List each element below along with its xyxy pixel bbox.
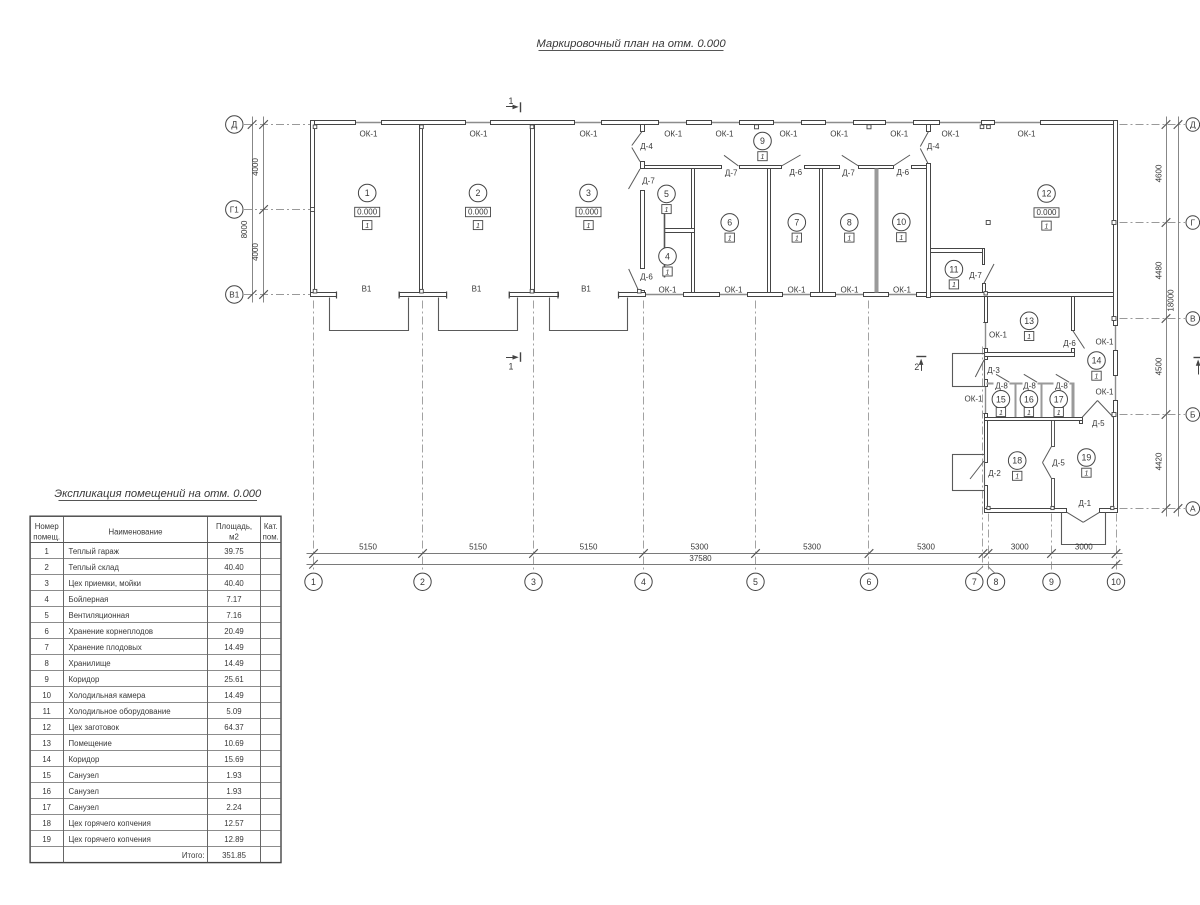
svg-text:Теплый склад: Теплый склад <box>69 563 120 572</box>
svg-text:Номер: Номер <box>35 522 60 531</box>
svg-text:17: 17 <box>1054 394 1064 404</box>
svg-text:15.69: 15.69 <box>224 755 244 764</box>
svg-text:Д-5: Д-5 <box>1092 419 1105 428</box>
svg-text:1: 1 <box>1015 474 1019 481</box>
svg-text:3: 3 <box>45 579 49 588</box>
svg-text:16: 16 <box>42 787 51 796</box>
svg-text:1: 1 <box>365 188 370 198</box>
svg-text:5.09: 5.09 <box>226 707 241 716</box>
svg-text:ОК-1: ОК-1 <box>890 130 909 139</box>
svg-text:1.93: 1.93 <box>226 771 241 780</box>
svg-text:Санузел: Санузел <box>69 771 100 780</box>
svg-text:12: 12 <box>1042 189 1052 199</box>
svg-text:В1: В1 <box>229 291 239 300</box>
svg-text:1: 1 <box>509 96 514 106</box>
svg-text:Вентиляционная: Вентиляционная <box>69 611 130 620</box>
svg-text:Д: Д <box>1190 120 1196 130</box>
svg-text:2: 2 <box>476 188 481 198</box>
svg-text:ОК-1: ОК-1 <box>1096 338 1115 347</box>
svg-text:4: 4 <box>665 251 670 261</box>
svg-text:ОК-1: ОК-1 <box>780 130 799 139</box>
svg-text:ОК-1: ОК-1 <box>989 331 1008 340</box>
svg-text:ОК-1: ОК-1 <box>830 130 849 139</box>
svg-text:Д-6: Д-6 <box>790 168 803 177</box>
svg-text:37580: 37580 <box>689 554 712 563</box>
svg-text:3: 3 <box>531 577 536 587</box>
svg-text:ОК-1: ОК-1 <box>659 286 678 295</box>
svg-text:64.37: 64.37 <box>224 723 244 732</box>
svg-text:м2: м2 <box>229 533 239 542</box>
svg-text:0.000: 0.000 <box>578 208 599 217</box>
svg-text:Г: Г <box>1191 218 1196 228</box>
svg-text:7: 7 <box>794 218 799 228</box>
svg-text:В1: В1 <box>581 284 591 293</box>
svg-text:4: 4 <box>45 595 50 604</box>
svg-text:1: 1 <box>999 410 1003 417</box>
svg-text:Д-2: Д-2 <box>988 469 1001 478</box>
svg-text:Бойлерная: Бойлерная <box>69 595 109 604</box>
svg-text:1: 1 <box>1027 334 1031 341</box>
svg-text:40.40: 40.40 <box>224 563 244 572</box>
svg-text:А: А <box>1190 504 1196 514</box>
svg-text:ОК-1: ОК-1 <box>965 395 984 404</box>
svg-text:10: 10 <box>42 691 51 700</box>
svg-text:2: 2 <box>420 577 425 587</box>
svg-text:9: 9 <box>1049 577 1054 587</box>
svg-text:Хранение плодовых: Хранение плодовых <box>69 643 142 652</box>
svg-text:18: 18 <box>1012 456 1022 466</box>
svg-text:7.16: 7.16 <box>226 611 241 620</box>
svg-text:8: 8 <box>994 577 999 587</box>
svg-text:1: 1 <box>1045 223 1049 230</box>
svg-text:8000: 8000 <box>240 220 249 238</box>
svg-text:19: 19 <box>42 835 51 844</box>
svg-text:18000: 18000 <box>1167 289 1176 312</box>
svg-text:0.000: 0.000 <box>357 208 378 217</box>
svg-text:4000: 4000 <box>251 158 260 176</box>
svg-text:Цех горячего копчения: Цех горячего копчения <box>69 819 151 828</box>
svg-text:Д-5: Д-5 <box>1052 458 1065 467</box>
svg-text:6: 6 <box>727 218 732 228</box>
svg-text:3: 3 <box>586 188 591 198</box>
svg-text:40.40: 40.40 <box>224 579 244 588</box>
svg-text:5: 5 <box>753 577 758 587</box>
svg-text:0.000: 0.000 <box>1036 208 1057 217</box>
svg-text:1: 1 <box>1084 471 1088 478</box>
svg-text:В: В <box>1190 314 1196 324</box>
svg-text:ОК-1: ОК-1 <box>580 130 599 139</box>
svg-text:Д-1: Д-1 <box>1079 499 1092 508</box>
svg-text:Экспликация помещений на отм.: Экспликация помещений на отм. 0.000 <box>54 488 262 500</box>
svg-text:9: 9 <box>760 136 765 146</box>
svg-text:ОК-1: ОК-1 <box>360 130 379 139</box>
svg-text:1: 1 <box>952 282 956 289</box>
svg-text:ОК-1: ОК-1 <box>788 286 807 295</box>
svg-text:17: 17 <box>42 803 51 812</box>
svg-text:Наименование: Наименование <box>108 528 162 537</box>
svg-text:2.24: 2.24 <box>226 803 242 812</box>
svg-text:13: 13 <box>42 739 51 748</box>
svg-text:1: 1 <box>728 235 732 242</box>
svg-text:14.49: 14.49 <box>224 691 244 700</box>
svg-text:Маркировочный план на отм. 0.0: Маркировочный план на отм. 0.000 <box>536 38 726 50</box>
svg-text:Холодильное оборудование: Холодильное оборудование <box>69 707 171 716</box>
svg-text:Г1: Г1 <box>230 206 239 215</box>
svg-text:Д-8: Д-8 <box>1023 382 1036 391</box>
svg-text:14.49: 14.49 <box>224 643 244 652</box>
svg-text:5300: 5300 <box>691 543 709 552</box>
svg-text:1: 1 <box>1095 374 1099 381</box>
svg-text:7: 7 <box>972 577 977 587</box>
svg-text:Д-6: Д-6 <box>1063 339 1076 348</box>
svg-text:11: 11 <box>949 264 958 274</box>
svg-text:Санузел: Санузел <box>69 787 100 796</box>
svg-text:ОК-1: ОК-1 <box>725 286 744 295</box>
svg-text:пом.: пом. <box>263 533 279 542</box>
svg-text:1: 1 <box>847 235 851 242</box>
svg-text:Д-3: Д-3 <box>987 366 1000 375</box>
svg-text:В1: В1 <box>472 284 482 293</box>
svg-text:Д-8: Д-8 <box>995 382 1008 391</box>
svg-text:20.49: 20.49 <box>224 627 244 636</box>
svg-text:Хранилище: Хранилище <box>69 659 111 668</box>
svg-text:14: 14 <box>1092 356 1102 366</box>
svg-text:12.89: 12.89 <box>224 835 244 844</box>
svg-text:1: 1 <box>665 207 669 214</box>
svg-text:Санузел: Санузел <box>69 803 100 812</box>
svg-text:1: 1 <box>795 235 799 242</box>
svg-text:14: 14 <box>42 755 51 764</box>
svg-text:5: 5 <box>45 611 50 620</box>
svg-text:4420: 4420 <box>1154 452 1163 470</box>
svg-text:1.93: 1.93 <box>226 787 241 796</box>
svg-text:Д-6: Д-6 <box>897 168 910 177</box>
svg-text:5: 5 <box>664 189 669 199</box>
svg-text:Цех приемки, мойки: Цех приемки, мойки <box>69 579 142 588</box>
svg-text:В1: В1 <box>362 284 372 293</box>
svg-text:1: 1 <box>45 547 49 556</box>
svg-text:351.85: 351.85 <box>222 851 247 860</box>
svg-text:ОК-1: ОК-1 <box>893 286 912 295</box>
svg-text:1: 1 <box>476 223 480 230</box>
svg-text:5300: 5300 <box>803 543 821 552</box>
svg-text:ОК-1: ОК-1 <box>1096 388 1115 397</box>
svg-text:6: 6 <box>45 627 49 636</box>
svg-text:Теплый гараж: Теплый гараж <box>69 547 120 556</box>
svg-text:10: 10 <box>896 217 906 227</box>
svg-text:4500: 4500 <box>1154 357 1163 375</box>
svg-text:2: 2 <box>914 362 919 372</box>
svg-text:Б: Б <box>1190 410 1196 420</box>
svg-text:Д-8: Д-8 <box>1055 382 1068 391</box>
svg-text:Хранение корнеплодов: Хранение корнеплодов <box>69 627 154 636</box>
svg-text:10: 10 <box>1111 577 1121 587</box>
svg-text:3000: 3000 <box>1075 543 1093 552</box>
svg-text:ОК-1: ОК-1 <box>470 130 489 139</box>
svg-text:14.49: 14.49 <box>224 659 244 668</box>
svg-text:1: 1 <box>311 577 316 587</box>
svg-text:Помещение: Помещение <box>69 739 112 748</box>
svg-text:6: 6 <box>867 577 872 587</box>
svg-text:12.57: 12.57 <box>224 819 244 828</box>
svg-text:4000: 4000 <box>251 243 260 261</box>
svg-text:4480: 4480 <box>1154 261 1163 279</box>
svg-text:1: 1 <box>509 362 514 372</box>
svg-text:1: 1 <box>1057 410 1061 417</box>
svg-text:11: 11 <box>43 707 51 716</box>
svg-text:Д-7: Д-7 <box>725 168 738 177</box>
svg-text:13: 13 <box>1024 316 1034 326</box>
svg-text:Итого:: Итого: <box>182 851 205 860</box>
svg-text:1: 1 <box>666 269 670 276</box>
svg-text:1: 1 <box>1027 410 1031 417</box>
svg-text:4600: 4600 <box>1154 164 1163 182</box>
svg-text:1: 1 <box>587 223 591 230</box>
svg-text:ОК-1: ОК-1 <box>716 130 735 139</box>
svg-text:Д-7: Д-7 <box>969 271 982 280</box>
svg-text:1: 1 <box>899 235 903 242</box>
svg-text:Д-6: Д-6 <box>640 273 653 282</box>
svg-text:1: 1 <box>761 154 765 161</box>
svg-text:3000: 3000 <box>1011 543 1029 552</box>
svg-text:Холодильная камера: Холодильная камера <box>69 691 147 700</box>
svg-text:15: 15 <box>42 771 51 780</box>
svg-text:39.75: 39.75 <box>224 547 244 556</box>
svg-text:Д-7: Д-7 <box>642 177 655 186</box>
svg-text:Д-4: Д-4 <box>640 142 653 151</box>
svg-text:Цех заготовок: Цех заготовок <box>69 723 120 732</box>
svg-text:8: 8 <box>45 659 49 668</box>
svg-text:ОК-1: ОК-1 <box>1018 130 1037 139</box>
svg-text:ОК-1: ОК-1 <box>841 286 860 295</box>
svg-text:8: 8 <box>847 218 852 228</box>
svg-text:5150: 5150 <box>580 543 598 552</box>
svg-text:15: 15 <box>996 394 1006 404</box>
svg-text:Площадь,: Площадь, <box>216 522 252 531</box>
svg-text:19: 19 <box>1082 453 1092 463</box>
svg-text:ОК-1: ОК-1 <box>942 130 961 139</box>
svg-text:Д-4: Д-4 <box>927 142 940 151</box>
svg-text:1: 1 <box>365 223 369 230</box>
svg-text:Коридор: Коридор <box>69 675 100 684</box>
svg-text:Коридор: Коридор <box>69 755 100 764</box>
svg-text:Цех горячего копчения: Цех горячего копчения <box>69 835 151 844</box>
svg-text:Кат.: Кат. <box>264 522 278 531</box>
svg-text:Д: Д <box>231 120 237 130</box>
svg-text:7: 7 <box>45 643 49 652</box>
svg-text:помещ.: помещ. <box>33 533 60 542</box>
svg-text:9: 9 <box>45 675 49 684</box>
svg-text:Д-7: Д-7 <box>842 168 855 177</box>
svg-text:10.69: 10.69 <box>224 739 244 748</box>
svg-text:2: 2 <box>45 563 49 572</box>
svg-text:18: 18 <box>42 819 51 828</box>
svg-text:5300: 5300 <box>917 543 935 552</box>
svg-text:25.61: 25.61 <box>224 675 244 684</box>
svg-text:4: 4 <box>641 577 646 587</box>
svg-text:5150: 5150 <box>469 543 487 552</box>
svg-text:12: 12 <box>42 723 51 732</box>
svg-text:7.17: 7.17 <box>226 595 241 604</box>
svg-text:16: 16 <box>1024 394 1034 404</box>
svg-text:0.000: 0.000 <box>468 208 489 217</box>
svg-text:5150: 5150 <box>359 543 377 552</box>
svg-text:ОК-1: ОК-1 <box>664 130 683 139</box>
